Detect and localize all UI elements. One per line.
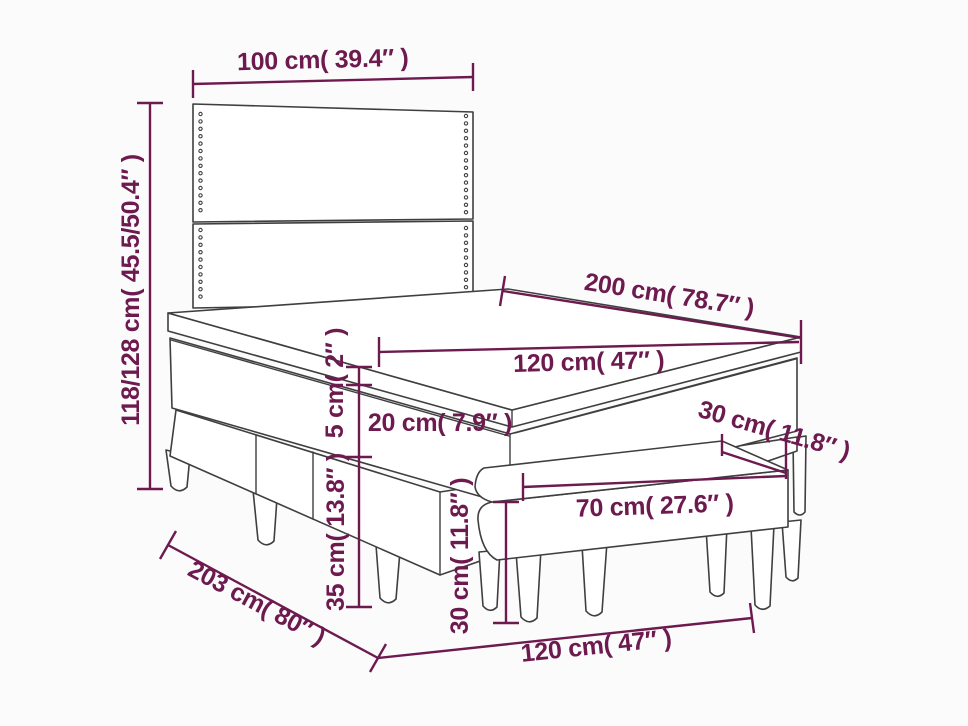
label-headboard-width: 100 cm( 39.4″ ): [237, 44, 409, 76]
label-topper-thickness: 5 cm( 2″ ): [321, 328, 349, 438]
bed-dimension-diagram: 100 cm( 39.4″ ) 118/128 cm( 45.5/50.4″ )…: [0, 0, 968, 726]
headboard-upper-panel: [193, 104, 473, 222]
headboard: [193, 104, 473, 308]
label-bench-width: 70 cm( 27.6″ ): [575, 489, 734, 522]
bench-leg: [751, 525, 774, 609]
bench-leg: [516, 549, 541, 622]
bench-leg: [582, 542, 607, 616]
label-mattress-thickness: 20 cm( 7.9″ ): [368, 409, 512, 437]
label-mattress-width: 120 cm( 47″ ): [513, 346, 665, 378]
diagram-canvas: 100 cm( 39.4″ ) 118/128 cm( 45.5/50.4″ )…: [0, 0, 968, 726]
label-total-height: 118/128 cm( 45.5/50.4″ ): [117, 154, 145, 426]
label-floor-length: 203 cm( 80″ ): [183, 555, 330, 651]
label-floor-width: 120 cm( 47″ ): [520, 624, 673, 668]
bench-leg: [782, 520, 801, 581]
label-bench-height: 30 cm( 11.8″ ): [446, 478, 474, 634]
bench: [475, 441, 801, 622]
label-base-height: 35 cm( 13.8″ ): [322, 453, 350, 611]
